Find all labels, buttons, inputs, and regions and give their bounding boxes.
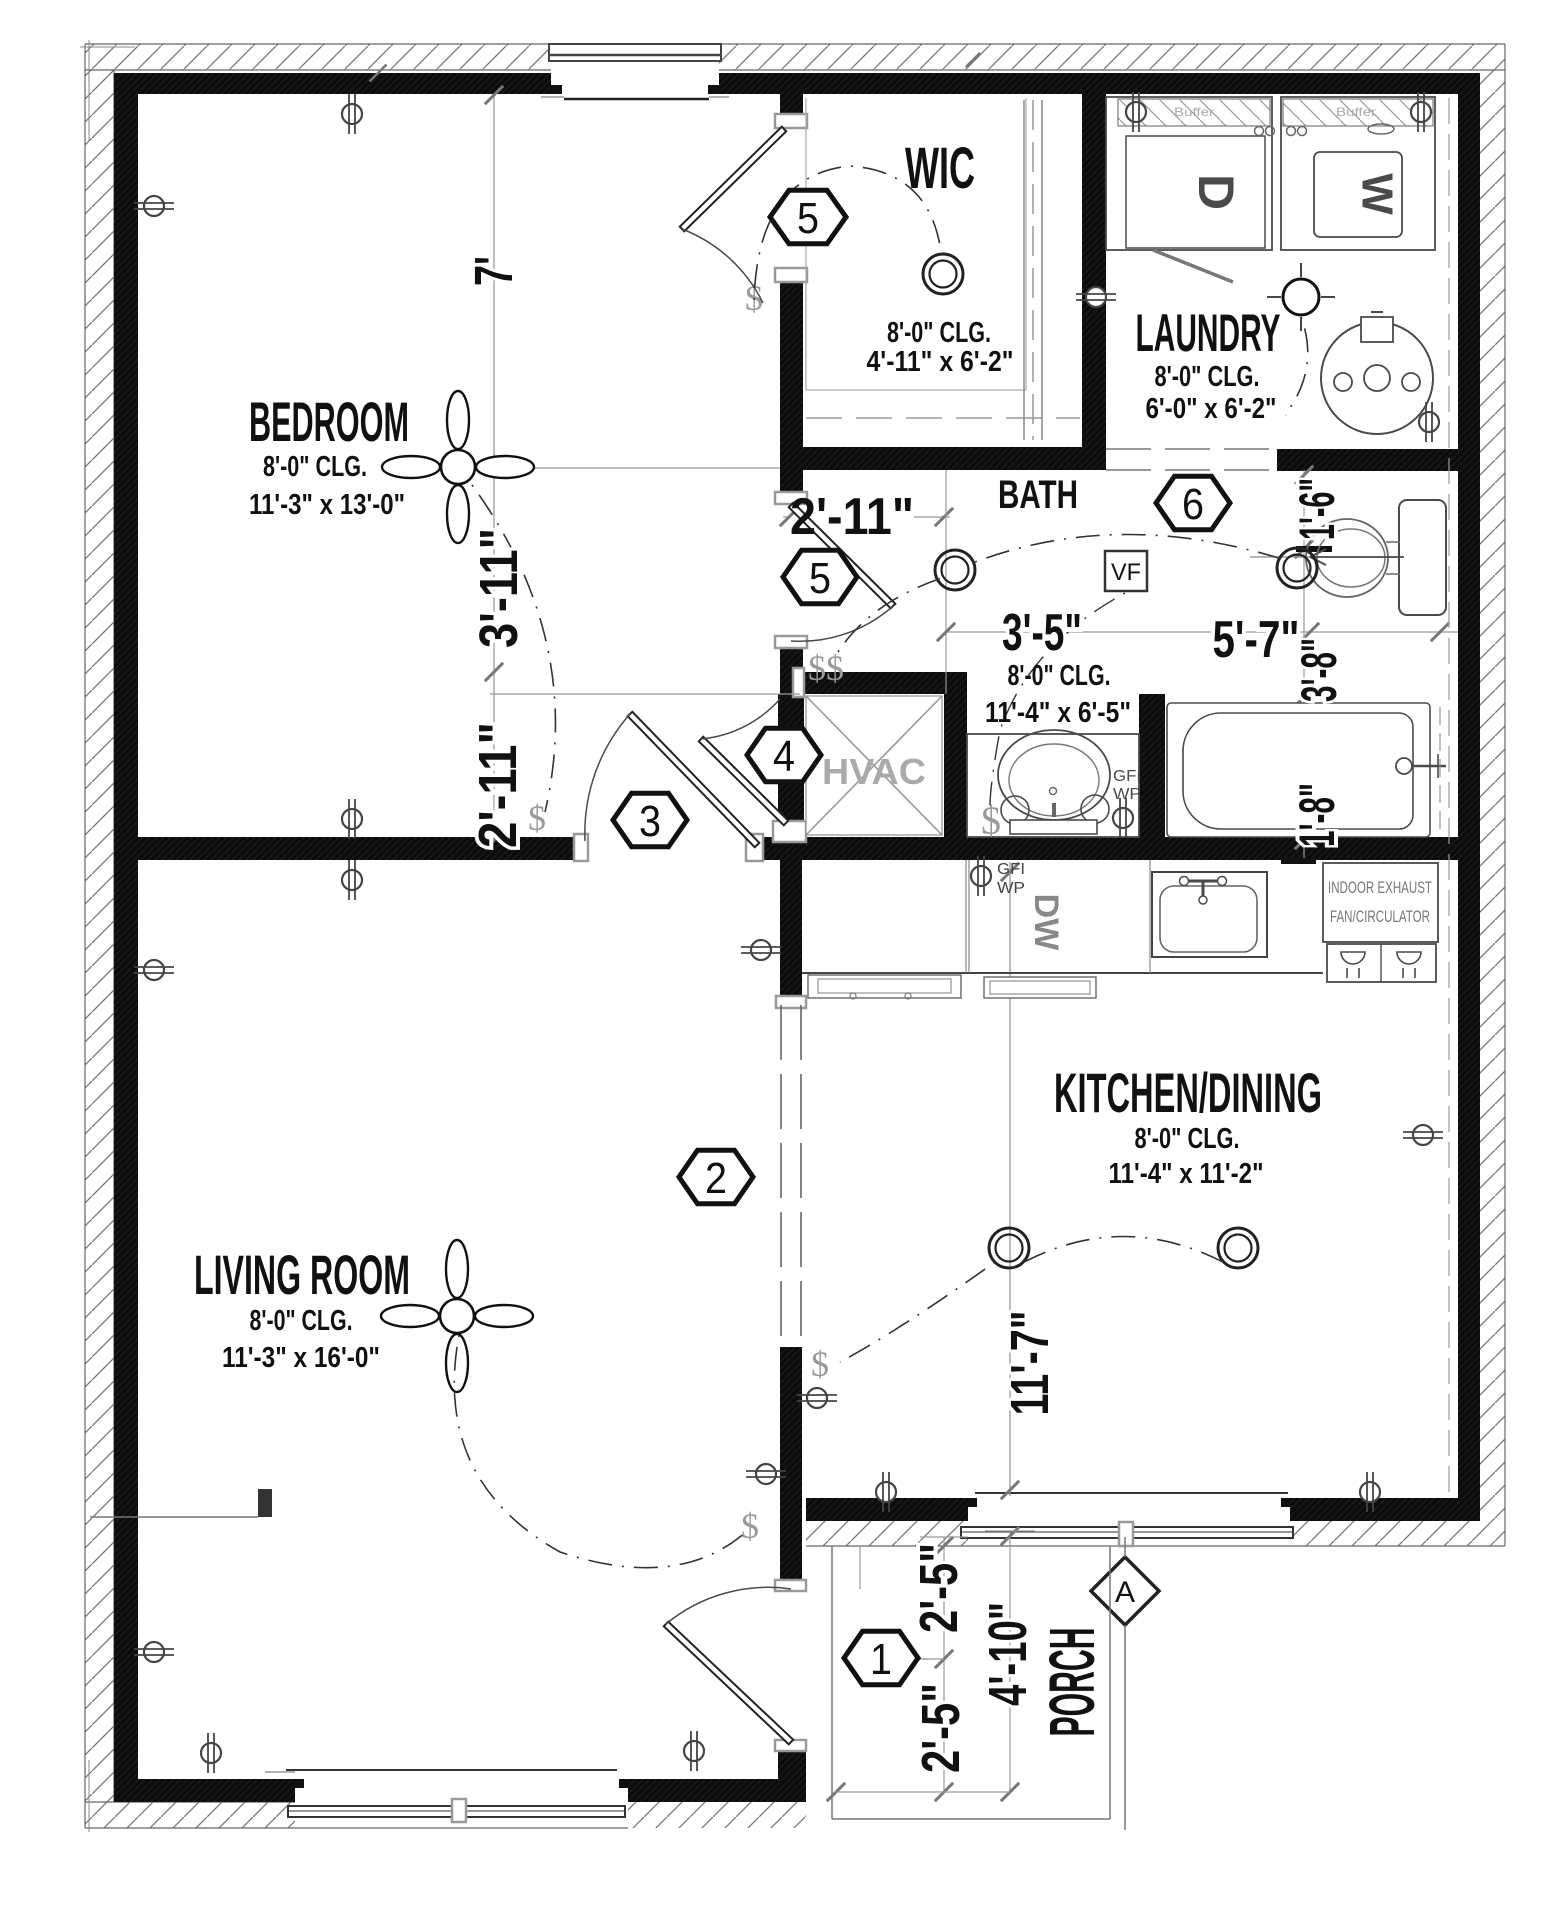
svg-text:PORCH: PORCH xyxy=(1036,1628,1108,1737)
svg-text:3'-8": 3'-8" xyxy=(1291,638,1347,702)
svg-text:BATH: BATH xyxy=(998,473,1078,517)
svg-text:W: W xyxy=(1352,173,1401,215)
svg-text:VF: VF xyxy=(1111,559,1141,586)
svg-text:5'-7": 5'-7" xyxy=(1213,611,1300,669)
svg-text:GFI: GFI xyxy=(1113,768,1141,785)
svg-text:$: $ xyxy=(528,798,546,838)
svg-text:1'-6": 1'-6" xyxy=(1289,478,1345,540)
svg-text:11'-4" x 6'-5": 11'-4" x 6'-5" xyxy=(985,697,1131,729)
svg-text:FAN/CIRCULATOR: FAN/CIRCULATOR xyxy=(1330,907,1430,926)
svg-text:3'-5": 3'-5" xyxy=(1002,604,1082,662)
svg-text:11'-3" x 13'-0": 11'-3" x 13'-0" xyxy=(249,489,405,521)
svg-text:8'-0" CLG.: 8'-0" CLG. xyxy=(1135,1123,1240,1155)
svg-text:11'-3" x 16'-0": 11'-3" x 16'-0" xyxy=(222,1342,380,1374)
svg-text:8'-0" CLG.: 8'-0" CLG. xyxy=(1008,660,1111,692)
svg-text:2'-11": 2'-11" xyxy=(468,722,528,848)
svg-text:11'-4" x 11'-2": 11'-4" x 11'-2" xyxy=(1109,1158,1264,1190)
svg-text:WP: WP xyxy=(1113,786,1141,803)
svg-text:8'-0" CLG.: 8'-0" CLG. xyxy=(263,451,367,483)
svg-text:6: 6 xyxy=(1182,480,1204,529)
svg-text:$: $ xyxy=(826,648,844,688)
svg-text:1'-8": 1'-8" xyxy=(1289,783,1345,847)
svg-text:2'-5": 2'-5" xyxy=(909,1543,969,1633)
svg-text:2'-11": 2'-11" xyxy=(790,488,914,546)
svg-text:4'-10": 4'-10" xyxy=(978,1602,1038,1706)
svg-text:5: 5 xyxy=(797,194,819,243)
svg-text:HVAC: HVAC xyxy=(822,751,926,792)
svg-text:4: 4 xyxy=(773,732,795,781)
svg-text:GFI: GFI xyxy=(997,861,1025,878)
svg-text:$: $ xyxy=(741,1506,759,1546)
svg-text:6'-0" x 6'-2": 6'-0" x 6'-2" xyxy=(1146,393,1277,425)
svg-text:Buffer: Buffer xyxy=(1174,105,1214,119)
svg-text:LAUNDRY: LAUNDRY xyxy=(1136,304,1281,363)
svg-text:3: 3 xyxy=(639,797,661,846)
svg-text:Buffer: Buffer xyxy=(1336,105,1376,119)
svg-text:$: $ xyxy=(811,1344,829,1384)
svg-text:LIVING ROOM: LIVING ROOM xyxy=(194,1243,410,1306)
svg-text:5: 5 xyxy=(809,554,831,603)
svg-text:INDOOR EXHAUST: INDOOR EXHAUST xyxy=(1328,878,1432,897)
svg-text:WIC: WIC xyxy=(905,136,975,201)
svg-text:KITCHEN/DINING: KITCHEN/DINING xyxy=(1054,1061,1322,1124)
svg-text:WP: WP xyxy=(997,880,1025,897)
svg-text:2'-5": 2'-5" xyxy=(911,1683,971,1773)
svg-text:8'-0" CLG.: 8'-0" CLG. xyxy=(250,1305,353,1337)
svg-text:DW: DW xyxy=(1027,894,1065,952)
svg-text:3'-11": 3'-11" xyxy=(469,528,529,648)
svg-text:D: D xyxy=(1188,174,1244,210)
svg-text:1: 1 xyxy=(870,1635,892,1684)
svg-text:$: $ xyxy=(808,648,826,688)
svg-text:BEDROOM: BEDROOM xyxy=(249,390,409,453)
svg-text:11'-7": 11'-7" xyxy=(1000,1311,1060,1416)
svg-text:A: A xyxy=(1115,1576,1135,1609)
svg-text:4'-11" x 6'-2": 4'-11" x 6'-2" xyxy=(867,346,1014,378)
svg-text:8'-0" CLG.: 8'-0" CLG. xyxy=(1155,361,1260,393)
svg-text:$: $ xyxy=(981,798,1001,843)
svg-text:7': 7' xyxy=(464,256,524,286)
svg-text:8'-0" CLG.: 8'-0" CLG. xyxy=(887,317,991,349)
svg-text:2: 2 xyxy=(705,1154,727,1203)
